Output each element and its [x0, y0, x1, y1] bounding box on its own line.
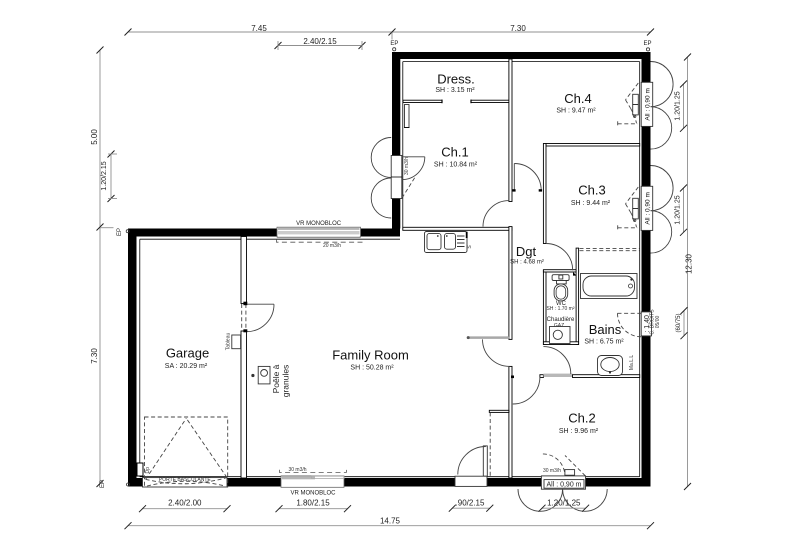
- svg-text:VR MONOBLOC: VR MONOBLOC: [290, 491, 336, 497]
- svg-text:SH : 50.28 m²: SH : 50.28 m²: [350, 365, 394, 372]
- svg-text:Ch.4: Ch.4: [564, 91, 591, 106]
- svg-text:Ch.3: Ch.3: [578, 183, 605, 198]
- svg-text:12.30: 12.30: [685, 253, 694, 274]
- svg-text:1.20/2.15: 1.20/2.15: [101, 161, 108, 190]
- svg-text:(60/75): (60/75): [676, 313, 682, 332]
- svg-text:granules: granules: [280, 365, 290, 398]
- svg-text:05/00: 05/00: [655, 316, 661, 329]
- svg-text:7.45: 7.45: [251, 24, 267, 33]
- svg-text:Ch.2: Ch.2: [568, 411, 595, 426]
- svg-text:SH : 6.75 m²: SH : 6.75 m²: [584, 339, 624, 346]
- svg-text:EP: EP: [390, 41, 398, 47]
- svg-text:EP: EP: [117, 228, 123, 236]
- svg-text:Ch.1: Ch.1: [441, 145, 468, 160]
- svg-text:20 m3/h: 20 m3/h: [323, 243, 341, 249]
- svg-text:VR MONOBLOC: VR MONOBLOC: [296, 221, 342, 227]
- svg-text:SH : 10.84 m²: SH : 10.84 m²: [434, 162, 478, 169]
- svg-text:EP: EP: [100, 480, 106, 488]
- svg-text:Garage: Garage: [166, 346, 209, 361]
- svg-text:5.00: 5.00: [90, 129, 99, 145]
- svg-text:1.80/2.15: 1.80/2.15: [296, 499, 330, 508]
- svg-text:30 m3/h: 30 m3/h: [543, 468, 561, 474]
- svg-text:SA : 20.29 m²: SA : 20.29 m²: [165, 363, 208, 370]
- svg-text:SH : 9.44 m²: SH : 9.44 m²: [571, 200, 611, 207]
- svg-text:Tableau: Tableau: [226, 333, 232, 351]
- svg-text:1.20/1.25: 1.20/1.25: [547, 499, 581, 508]
- svg-text:Dp: Dp: [145, 467, 151, 474]
- svg-text:SH : 9.96 m²: SH : 9.96 m²: [559, 428, 599, 435]
- svg-text:7.30: 7.30: [510, 24, 526, 33]
- svg-text:Family Room: Family Room: [332, 348, 409, 363]
- svg-text:Dgt: Dgt: [516, 244, 537, 259]
- svg-text:SH : 4.68 m²: SH : 4.68 m²: [510, 260, 544, 266]
- svg-text:2.40/2.00: 2.40/2.00: [168, 499, 202, 508]
- svg-text:SH : 3.15 m²: SH : 3.15 m²: [435, 87, 475, 94]
- svg-text:All : 0,90 m: All : 0,90 m: [644, 88, 651, 121]
- svg-text:Dress.: Dress.: [437, 72, 475, 87]
- svg-text:PORTE BASCULANTE: PORTE BASCULANTE: [159, 477, 212, 483]
- svg-text:All : 0,90 m: All : 0,90 m: [546, 482, 581, 489]
- svg-text:14.75: 14.75: [380, 516, 401, 525]
- svg-text:SH : 9.47 m²: SH : 9.47 m²: [556, 108, 596, 115]
- svg-text:1.20/1.25: 1.20/1.25: [675, 91, 682, 120]
- svg-text:7.30: 7.30: [90, 348, 99, 364]
- svg-text:30 m3/h: 30 m3/h: [288, 467, 306, 473]
- svg-text:Bains: Bains: [589, 322, 622, 337]
- svg-text:1.20/1.25: 1.20/1.25: [675, 195, 682, 224]
- svg-text:Ma.L.L: Ma.L.L: [629, 355, 635, 371]
- svg-text:2.40/2.15: 2.40/2.15: [303, 37, 337, 46]
- svg-text:30 m3/h: 30 m3/h: [404, 157, 410, 175]
- svg-text:.90/2.15: .90/2.15: [456, 499, 485, 508]
- svg-text:All : 0,90 m: All : 0,90 m: [644, 192, 651, 225]
- svg-text:EP: EP: [643, 41, 651, 47]
- svg-text:SH : 1.70 m²: SH : 1.70 m²: [546, 306, 574, 312]
